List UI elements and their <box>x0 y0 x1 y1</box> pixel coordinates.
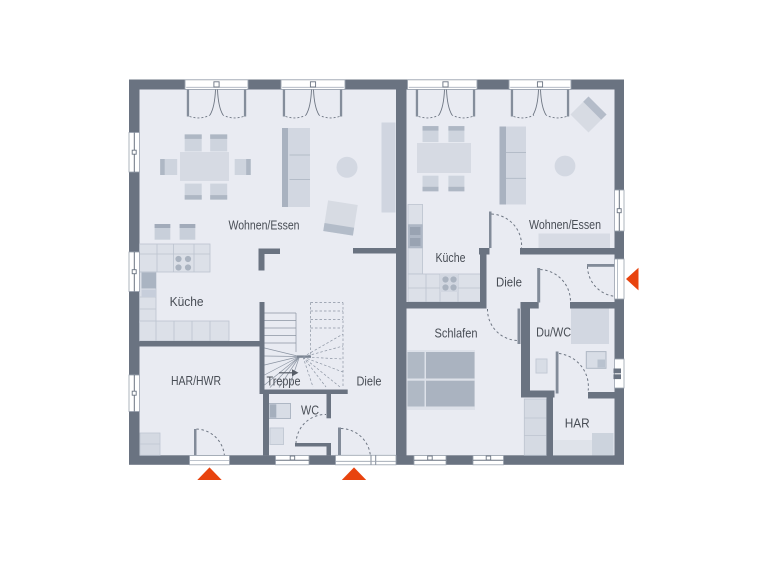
svg-text:Wohnen/Essen: Wohnen/Essen <box>529 217 601 232</box>
svg-text:HAR: HAR <box>565 415 590 430</box>
svg-text:Wohnen/Essen: Wohnen/Essen <box>229 218 300 233</box>
svg-text:WC: WC <box>301 403 319 418</box>
svg-text:Diele: Diele <box>496 275 522 290</box>
svg-text:Du/WC: Du/WC <box>536 324 571 339</box>
svg-text:Treppe: Treppe <box>267 374 301 389</box>
svg-text:Küche: Küche <box>170 294 204 309</box>
svg-text:HAR/HWR: HAR/HWR <box>171 373 221 388</box>
svg-text:Diele: Diele <box>357 374 382 389</box>
svg-text:Küche: Küche <box>436 250 466 265</box>
svg-text:Schlafen: Schlafen <box>435 326 478 341</box>
